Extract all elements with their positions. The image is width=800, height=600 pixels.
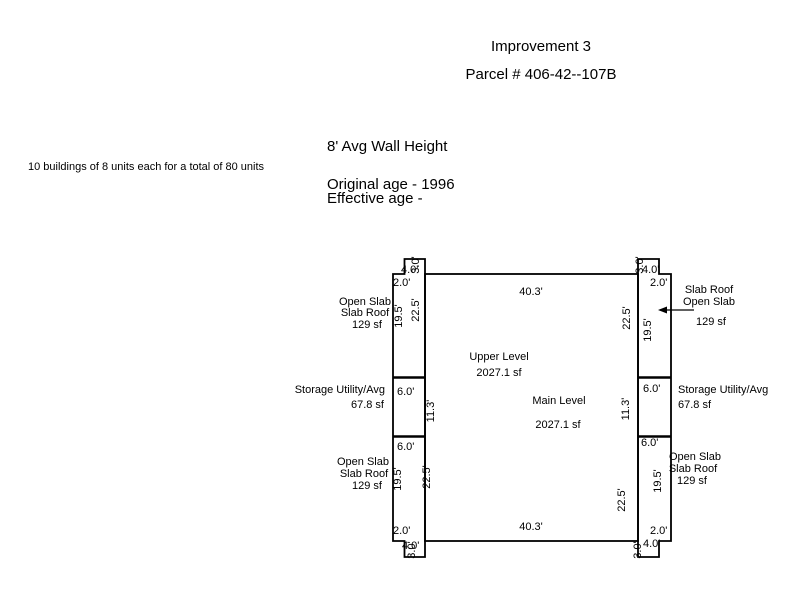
dim-right-upper-wall-seg: 22.5'	[621, 306, 633, 330]
dim-right-top-notch-h: 3.0'	[634, 256, 646, 273]
dim-right-bottom-notch-w: 4.0'	[643, 538, 660, 550]
dim-left-upper-wall-seg: 22.5'	[410, 298, 422, 322]
dim-right-lower-top-w: 6.0'	[641, 437, 658, 449]
dim-left-lower-slab-len: 19.5'	[392, 467, 404, 491]
dim-left-top-notch-h: 3.0'	[410, 256, 422, 273]
dim-bottom-width: 40.3'	[519, 521, 543, 533]
dim-right-storage-top-w: 6.0'	[643, 383, 660, 395]
dim-right-upper-slab-len: 19.5'	[642, 318, 654, 342]
upper-level-area: 2027.1 sf	[476, 367, 522, 379]
dim-right-bottom-edge: 2.0'	[650, 525, 667, 537]
main-level-label: Main Level	[532, 395, 585, 407]
left-bottom-annotation-line1: Open Slab	[337, 456, 389, 468]
left-bottom-annotation-area: 129 sf	[352, 480, 383, 492]
right-mid-annotation-line1: Storage Utility/Avg	[678, 384, 768, 396]
right-top-annotation-line2: Open Slab	[683, 296, 735, 308]
dim-left-upper-slab-len: 19.5'	[393, 304, 405, 328]
left-bottom-annotation-line2: Slab Roof	[340, 468, 389, 480]
right-mid-annotation-area: 67.8 sf	[678, 399, 712, 411]
dim-left-storage-top-w: 6.0'	[397, 386, 414, 398]
right-top-annotation-area: 129 sf	[696, 316, 727, 328]
dim-left-bottom-edge: 2.0'	[393, 525, 410, 537]
main-footprint	[425, 274, 638, 541]
dim-right-bottom-notch-h: 3.0'	[632, 541, 644, 558]
right-bottom-annotation-line2: Slab Roof	[669, 463, 718, 475]
dim-right-storage-len: 11.3'	[620, 398, 632, 421]
dim-right-lower-slab-len: 19.5'	[652, 469, 664, 493]
dim-left-lower-top-w: 6.0'	[397, 441, 414, 453]
upper-level-label: Upper Level	[469, 351, 528, 363]
main-level-area: 2027.1 sf	[535, 419, 581, 431]
left-mid-annotation-line1: Storage Utility/Avg	[295, 384, 385, 396]
dim-left-storage-len: 11.3'	[425, 400, 437, 423]
left-top-annotation-line2: Slab Roof	[341, 307, 390, 319]
right-bottom-annotation-line1: Open Slab	[669, 451, 721, 463]
dim-right-top-edge: 2.0'	[650, 277, 667, 289]
building-sketch: 40.3' 40.3' Upper Level 2027.1 sf Main L…	[0, 0, 800, 600]
left-top-annotation-area: 129 sf	[352, 319, 383, 331]
sketch-page: Improvement 3 Parcel # 406-42--107B 8' A…	[0, 0, 800, 600]
annotation-arrow-head-icon	[658, 307, 667, 314]
left-mid-annotation-area: 67.8 sf	[351, 399, 385, 411]
dim-right-lower-wall-seg: 22.5'	[616, 488, 628, 512]
right-top-annotation-line1: Slab Roof	[685, 284, 734, 296]
dim-top-width: 40.3'	[519, 286, 543, 298]
dim-left-top-edge: 2.0'	[393, 277, 410, 289]
right-wing-outline	[638, 259, 671, 557]
right-bottom-annotation-area: 129 sf	[677, 475, 708, 487]
dim-left-lower-wall-seg: 22.5'	[421, 465, 433, 489]
dim-left-bottom-notch-h: 3.0'	[406, 541, 418, 558]
